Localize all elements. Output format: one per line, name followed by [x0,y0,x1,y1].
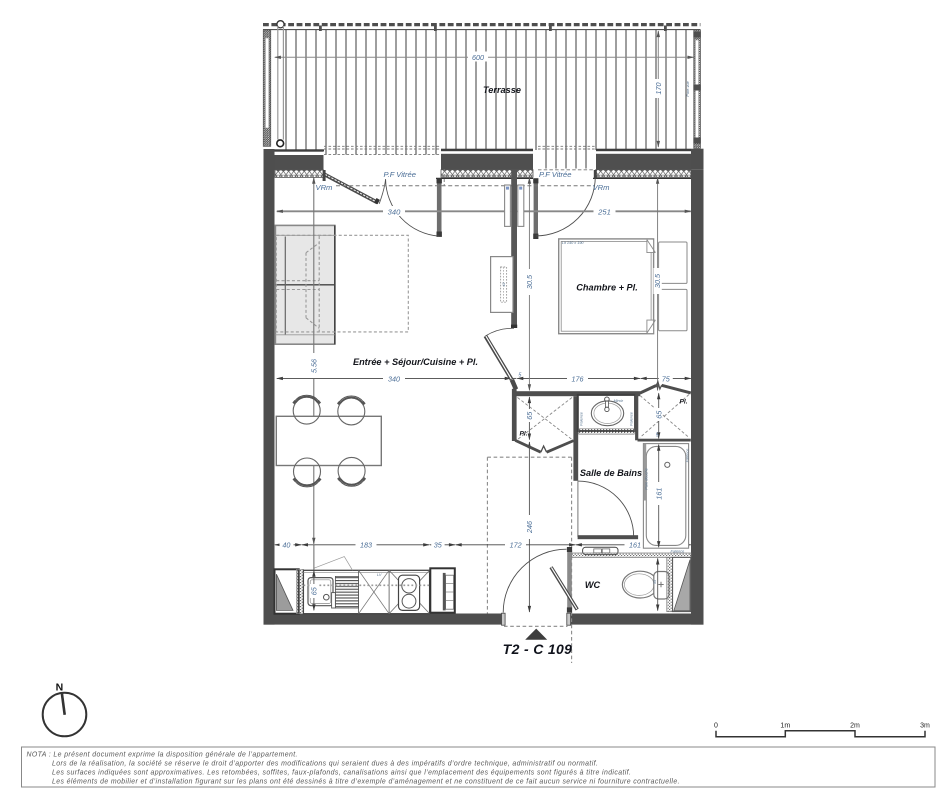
svg-text:161: 161 [654,488,663,500]
svg-text:Chambre + Pl.: Chambre + Pl. [576,283,638,293]
svg-text:0: 0 [714,723,718,730]
svg-text:WC: WC [585,580,601,590]
svg-text:176: 176 [572,374,584,383]
svg-text:N: N [56,681,64,693]
svg-text:65: 65 [654,410,663,419]
svg-text:Miroir: Miroir [614,399,624,403]
svg-text:183: 183 [360,541,372,550]
svg-text:T2 - C 109: T2 - C 109 [503,641,573,657]
svg-text:600: 600 [472,53,484,62]
svg-text:40: 40 [282,541,290,550]
svg-text:Terrasse: Terrasse [483,85,521,95]
svg-text:172: 172 [510,541,522,550]
svg-text:170: 170 [654,83,663,95]
svg-text:VRm: VRm [593,183,610,192]
svg-text:LV: LV [377,573,382,577]
svg-text:30.5: 30.5 [525,274,534,289]
svg-text:75: 75 [662,374,671,383]
svg-text:Faïence: Faïence [580,412,584,426]
svg-text:161: 161 [629,541,641,550]
svg-text:Pl.: Pl. [520,430,528,437]
svg-text:NOTA : Le présent document exp: NOTA : Le présent document exprime la di… [27,752,298,759]
svg-text:Les éléments de mobilier et d’: Les éléments de mobilier et d’installati… [52,779,680,786]
svg-text:5.56: 5.56 [309,359,318,373]
svg-text:Les surfaces indiquées sont ap: Les surfaces indiquées sont approximativ… [52,770,631,777]
svg-text:340: 340 [388,374,400,383]
svg-text:Entrée + Séjour/Cuisine + Pl.: Entrée + Séjour/Cuisine + Pl. [353,357,478,367]
svg-text:Faïence: Faïence [629,412,633,426]
svg-text:340: 340 [388,207,401,216]
svg-text:Lors de la réalisation, la soc: Lors de la réalisation, la société se ré… [52,761,598,768]
svg-text:2m: 2m [850,723,860,730]
svg-text:P.F Vitrée: P.F Vitrée [539,170,572,179]
svg-text:Faïence: Faïence [685,449,689,463]
svg-text:Salle de Bains: Salle de Bains [580,468,642,478]
svg-text:Pare douche: Pare douche [644,468,648,490]
svg-text:Lit 140 x 190: Lit 140 x 190 [562,241,585,245]
svg-text:1m: 1m [780,723,790,730]
svg-text:30.5: 30.5 [653,273,662,288]
svg-text:65: 65 [525,411,534,420]
svg-text:VRm: VRm [316,183,333,192]
svg-text:3m: 3m [920,723,930,730]
svg-text:35: 35 [434,541,443,550]
svg-text:65: 65 [309,586,318,595]
svg-text:251: 251 [597,207,611,216]
svg-text:Pare-vue: Pare-vue [686,81,690,96]
svg-text:P.F Vitrée: P.F Vitrée [384,170,417,179]
svg-text:Pl.: Pl. [680,399,688,406]
svg-text:246: 246 [525,521,534,534]
